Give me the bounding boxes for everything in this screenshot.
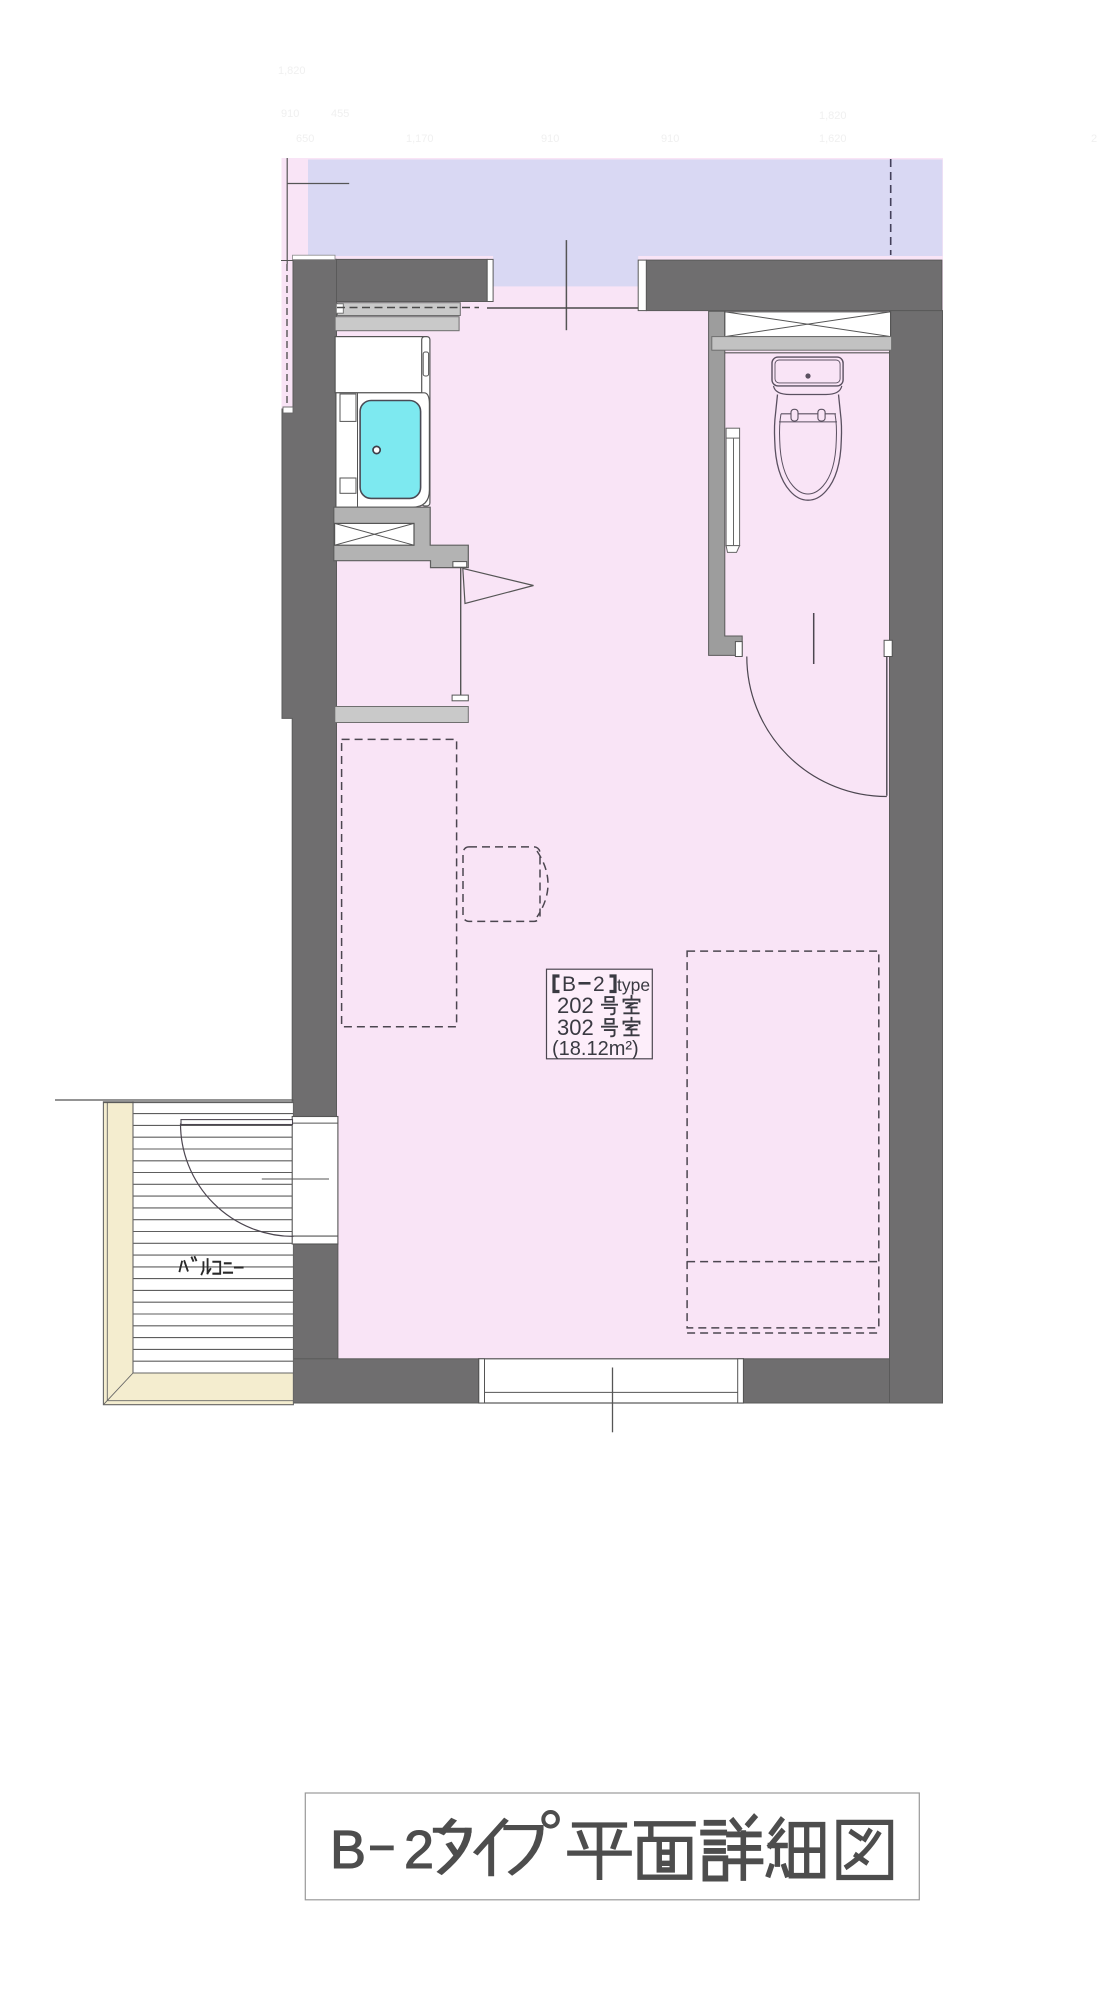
svg-text:B: B xyxy=(330,1820,366,1880)
svg-text:455: 455 xyxy=(331,108,349,120)
svg-text:910: 910 xyxy=(281,108,299,120)
svg-text:302: 302 xyxy=(557,1015,594,1040)
svg-text:2: 2 xyxy=(1091,133,1097,145)
svg-text:2: 2 xyxy=(593,973,605,996)
svg-text:(18.12m²): (18.12m²) xyxy=(552,1038,639,1060)
svg-text:type: type xyxy=(617,975,650,995)
svg-text:1,170: 1,170 xyxy=(406,133,434,145)
svg-text:910: 910 xyxy=(661,133,679,145)
svg-text:1,620: 1,620 xyxy=(819,133,847,145)
svg-text:1,820: 1,820 xyxy=(819,110,847,122)
svg-text:650: 650 xyxy=(296,133,314,145)
svg-text:2: 2 xyxy=(404,1820,434,1880)
svg-text:1,820: 1,820 xyxy=(278,65,306,77)
svg-text:910: 910 xyxy=(541,133,559,145)
